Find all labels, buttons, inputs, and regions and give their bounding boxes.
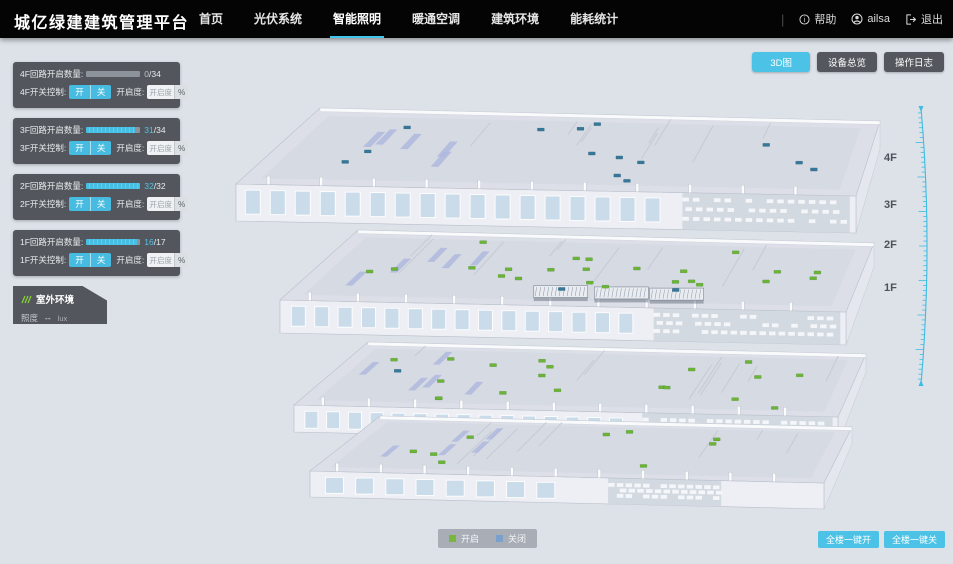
top-navbar: 城亿绿建建筑管理平台 首页 光伏系统 智能照明 暖通空调 建筑环境 能耗统计 |… — [0, 0, 953, 38]
dim-level-label: 开启度: — [116, 198, 144, 210]
illuminance-label: 照度 — [21, 312, 38, 324]
illuminance-unit: lux — [58, 314, 68, 323]
floor-label-3f[interactable]: 3F — [884, 199, 897, 211]
switch-button-group: 开关 — [69, 141, 111, 155]
main-menu: 首页 光伏系统 智能照明 暖通空调 建筑环境 能耗统计 — [196, 0, 621, 38]
legend-on-swatch — [449, 535, 456, 542]
switch-button-group: 开关 — [69, 197, 111, 211]
user-menu[interactable]: ailsa — [851, 13, 890, 25]
building-3d-view[interactable] — [222, 92, 894, 522]
help-button[interactable]: i 帮助 — [799, 11, 836, 27]
floor-panel-2f: 2F回路开启数量:32/322F开关控制:开关开启度:% — [13, 174, 180, 220]
circuit-progress-bar — [86, 127, 140, 133]
dim-input-group: % — [147, 197, 188, 211]
circuit-count-value: 31/34 — [144, 125, 165, 135]
circuit-count-label: 1F回路开启数量: — [20, 236, 83, 248]
menu-item-pv[interactable]: 光伏系统 — [251, 0, 305, 38]
legend-off-swatch — [496, 535, 503, 542]
percent-apply-button[interactable]: % — [174, 197, 188, 211]
header-divider: | — [781, 12, 784, 27]
switch-off-button[interactable]: 关 — [90, 85, 112, 99]
app-window: 城亿绿建建筑管理平台 首页 光伏系统 智能照明 暖通空调 建筑环境 能耗统计 |… — [0, 0, 953, 564]
menu-item-energy[interactable]: 能耗统计 — [567, 0, 621, 38]
switch-off-button[interactable]: 关 — [90, 197, 112, 211]
dim-level-label: 开启度: — [116, 254, 144, 266]
switch-on-button[interactable]: 开 — [69, 197, 90, 211]
light-status-legend: 开启 关闭 — [438, 529, 537, 548]
menu-item-hvac[interactable]: 暖通空调 — [409, 0, 463, 38]
dim-level-label: 开启度: — [116, 86, 144, 98]
percent-apply-button[interactable]: % — [174, 253, 188, 267]
floor-panel-4f: 4F回路开启数量:0/344F开关控制:开关开启度:% — [13, 62, 180, 108]
circuit-count-label: 2F回路开启数量: — [20, 180, 83, 192]
menu-item-env[interactable]: 建筑环境 — [488, 0, 542, 38]
circuit-count-value: 0/34 — [144, 69, 161, 79]
dim-input-group: % — [147, 253, 188, 267]
svg-text:i: i — [804, 16, 806, 23]
circuit-progress-bar — [86, 71, 140, 77]
circuit-count-value: 16/17 — [144, 237, 165, 247]
floor-label-2f[interactable]: 2F — [884, 239, 897, 251]
dim-level-input[interactable] — [147, 253, 174, 267]
circuit-progress-bar — [86, 239, 140, 245]
outdoor-env-panel: 室外环境 照度 -- lux — [13, 286, 107, 324]
circuit-count-label: 3F回路开启数量: — [20, 124, 83, 136]
circuit-count-label: 4F回路开启数量: — [20, 68, 83, 80]
brand-title: 城亿绿建建筑管理平台 — [14, 9, 189, 33]
scale-ruler — [908, 100, 936, 392]
switch-off-button[interactable]: 关 — [90, 141, 112, 155]
floor-label-1f[interactable]: 1F — [884, 282, 897, 294]
illuminance-value: -- — [45, 313, 51, 323]
switch-control-label: 2F开关控制: — [20, 198, 66, 210]
logout-button[interactable]: 退出 — [905, 11, 943, 27]
user-avatar-icon — [851, 13, 863, 25]
switch-button-group: 开关 — [69, 85, 111, 99]
circuit-count-value: 32/32 — [144, 181, 165, 191]
dim-level-label: 开启度: — [116, 142, 144, 154]
switch-on-button[interactable]: 开 — [69, 141, 90, 155]
header-right-group: | i 帮助 ailsa — [781, 0, 943, 38]
help-icon: i — [799, 14, 810, 25]
floor-label-4f[interactable]: 4F — [884, 152, 897, 164]
operation-log-button[interactable]: 操作日志 — [884, 52, 944, 72]
menu-item-home[interactable]: 首页 — [196, 0, 226, 38]
percent-apply-button[interactable]: % — [174, 85, 188, 99]
all-on-button[interactable]: 全楼一键开 — [818, 531, 879, 548]
dim-level-input[interactable] — [147, 197, 174, 211]
username: ailsa — [867, 13, 890, 25]
switch-control-label: 3F开关控制: — [20, 142, 66, 154]
dim-level-input[interactable] — [147, 141, 174, 155]
switch-control-label: 4F开关控制: — [20, 86, 66, 98]
device-overview-button[interactable]: 设备总览 — [817, 52, 877, 72]
logout-icon — [905, 14, 917, 25]
bulk-control-group: 全楼一键开 全楼一键关 — [818, 531, 945, 548]
circuit-progress-bar — [86, 183, 140, 189]
dim-level-input[interactable] — [147, 85, 174, 99]
switch-off-button[interactable]: 关 — [90, 253, 112, 267]
switch-control-label: 1F开关控制: — [20, 254, 66, 266]
switch-on-button[interactable]: 开 — [69, 253, 90, 267]
floor-panel-3f: 3F回路开启数量:31/343F开关控制:开关开启度:% — [13, 118, 180, 164]
dim-input-group: % — [147, 141, 188, 155]
percent-apply-button[interactable]: % — [174, 141, 188, 155]
menu-item-lighting[interactable]: 智能照明 — [330, 0, 384, 38]
legend-item-on: 开启 — [449, 532, 479, 545]
view-switch-group: 3D图 设备总览 操作日志 — [752, 52, 944, 72]
view-3d-button[interactable]: 3D图 — [752, 52, 810, 72]
dim-input-group: % — [147, 85, 188, 99]
switch-button-group: 开关 — [69, 253, 111, 267]
floor-panel-1f: 1F回路开启数量:16/171F开关控制:开关开启度:% — [13, 230, 180, 276]
all-off-button[interactable]: 全楼一键关 — [884, 531, 945, 548]
outdoor-env-title: 室外环境 — [36, 292, 74, 306]
switch-on-button[interactable]: 开 — [69, 85, 90, 99]
legend-item-off: 关闭 — [496, 532, 526, 545]
outdoor-env-icon — [21, 295, 32, 304]
